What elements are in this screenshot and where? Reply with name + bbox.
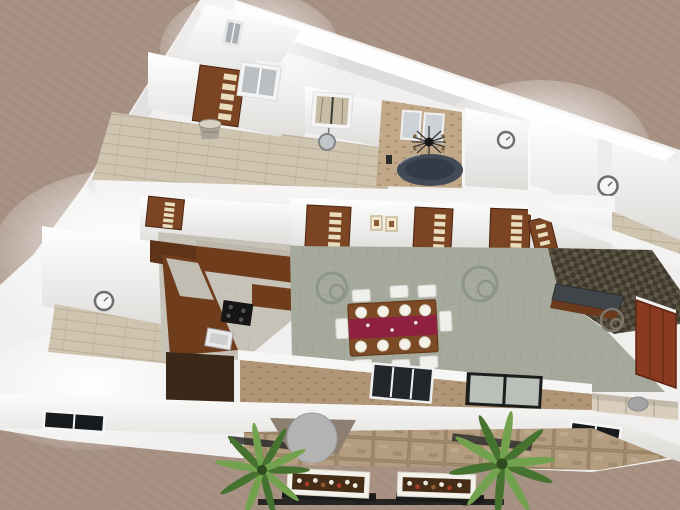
- wall-clock: [599, 177, 618, 196]
- sunburst-center: [425, 138, 434, 147]
- wall-clock: [498, 132, 514, 148]
- door-pane: [329, 227, 341, 232]
- door-pane: [511, 236, 522, 241]
- door-pane: [434, 222, 445, 227]
- door-pane: [511, 215, 522, 220]
- door-leaf: [305, 205, 351, 249]
- door-pane: [328, 235, 340, 240]
- barrel-planter: [199, 120, 221, 140]
- door-pane: [511, 222, 522, 227]
- panel-door: [413, 207, 453, 251]
- dining-chair: [418, 285, 437, 298]
- closet-floor-planks: [166, 352, 234, 404]
- hallway-wall: [465, 108, 528, 190]
- south-window: [371, 363, 434, 402]
- dining-chair: [390, 285, 409, 298]
- door-pane: [510, 243, 521, 248]
- bath-fixture: [386, 155, 392, 164]
- palm-center: [257, 465, 267, 475]
- spa-tub-basin: [405, 158, 455, 180]
- slider-pane: [505, 377, 539, 406]
- render-viewport[interactable]: [0, 0, 680, 510]
- round-wall-ornament: [319, 134, 335, 150]
- door-leaf: [413, 207, 453, 251]
- cooktop: [221, 300, 254, 326]
- curtained-window: [311, 92, 353, 130]
- barrel-top: [199, 120, 221, 129]
- door-leaf: [489, 208, 530, 249]
- kitchen-sink: [205, 328, 234, 350]
- slider-pane: [469, 375, 503, 404]
- southwest-window: [44, 411, 105, 432]
- panel-door: [192, 65, 245, 127]
- door-pane: [511, 229, 522, 234]
- panel-door: [146, 196, 185, 230]
- door-pane: [435, 214, 446, 219]
- door-pane: [329, 220, 341, 225]
- sliding-glass-door: [465, 372, 543, 409]
- panel-door: [489, 208, 530, 249]
- bedroom-window: [237, 62, 281, 101]
- door-pane: [330, 212, 342, 217]
- room-hallway: [465, 108, 528, 190]
- red-wardrobe: [636, 300, 676, 388]
- mirror: [401, 111, 421, 140]
- wall-clock: [95, 292, 113, 310]
- room-bathroom: [376, 100, 463, 188]
- dining-chair: [335, 318, 348, 339]
- dining-chair: [439, 311, 452, 332]
- gray-armchair: [628, 397, 648, 411]
- panel-door: [305, 205, 351, 249]
- floor-plan-scene: [0, 0, 680, 510]
- dining-chair: [352, 289, 371, 302]
- door-pane: [433, 237, 444, 242]
- window-glass: [371, 363, 434, 402]
- door-pane: [434, 229, 445, 234]
